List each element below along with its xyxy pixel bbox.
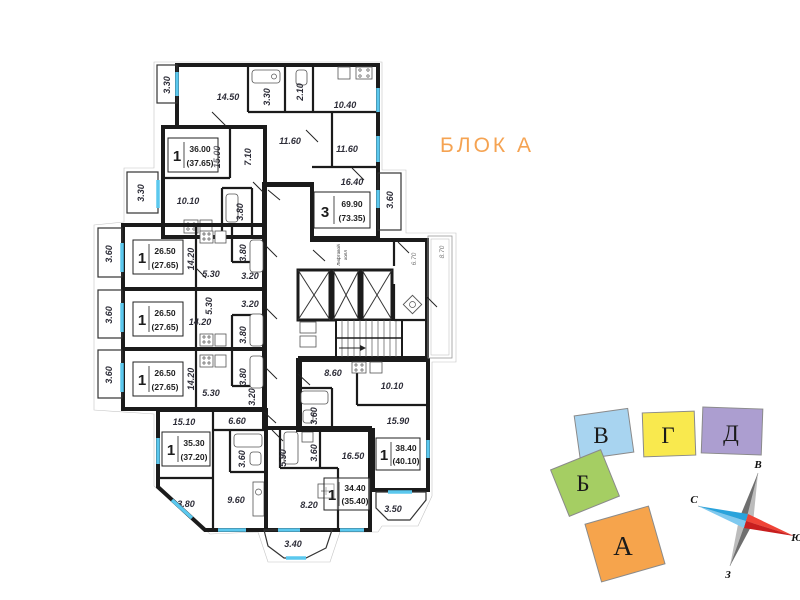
compass-blade-north-dark — [698, 506, 748, 521]
floor-plan-canvas: 14.50 3.30 2.10 10.40 11.60 11.60 16.40 … — [0, 0, 800, 600]
yellow-top-kitchen-dim: 10.10 — [177, 196, 200, 206]
elevator-shaft-icons — [298, 270, 392, 320]
yellow-bottom-apartment-tag: 1 35.30 (37.20) — [162, 432, 210, 466]
escape-balcony-outline: 8.70 — [428, 236, 452, 358]
stove-icon — [200, 334, 213, 346]
compass-label-west: З — [724, 569, 731, 581]
stove-icon — [200, 231, 213, 243]
purple-balcony-dim: 3.40 — [284, 539, 302, 549]
apartment-yellow-bottom: 15.10 6.60 3.60 9.60 3.80 1 35.30 (37.20… — [158, 410, 266, 530]
sink-icon — [338, 67, 350, 79]
green-mid-living-area: 26.50 — [154, 308, 176, 318]
yellow-bottom-kitchen-dim: 9.60 — [227, 495, 245, 505]
yellow-top-balcony-dim: 3.30 — [136, 184, 146, 202]
elevator-core: Лифтовой холл — [298, 240, 427, 357]
pink-bed-dim: 11.60 — [336, 144, 358, 154]
yellow-top-hall-dim: 7.10 — [243, 148, 253, 166]
blue-living-area: 26.50 — [154, 246, 176, 256]
sink-icon — [215, 231, 226, 243]
pink-balcony-top-dim: 3.30 — [162, 76, 172, 94]
pink-hall-dim: 11.60 — [279, 136, 301, 146]
purple-kitchen-dim: 8.20 — [300, 500, 318, 510]
yellow-bottom-room-count: 1 — [167, 442, 175, 459]
sink-icon — [370, 362, 382, 373]
green-mid-room-count: 1 — [138, 312, 146, 329]
utility-closet — [300, 336, 316, 347]
apartment-yellow-top: 15.00 7.10 10.10 3.80 3.30 1 36.00 (37.6… — [127, 127, 265, 237]
orange-room-count: 1 — [138, 372, 146, 389]
green-bottom-living-area: 38.40 — [395, 443, 417, 453]
bathtub-icon — [250, 356, 263, 388]
escape-balcony-dim: 8.70 — [439, 245, 446, 258]
bathtub-icon — [252, 70, 280, 83]
site-minimap: В Г Д Б А — [551, 407, 763, 582]
yellow-top-total-area: (37.65) — [187, 158, 214, 168]
compass-label-north: С — [690, 494, 698, 506]
green-mid-balcony-dim: 3.60 — [104, 306, 114, 324]
block-title: БЛОК А — [440, 134, 534, 157]
pink-total-area: (73.35) — [339, 213, 366, 223]
garbage-chute-icon — [403, 295, 421, 313]
yellow-top-bath-dim: 3.80 — [235, 203, 245, 221]
pink-balcony-right-dim: 3.60 — [385, 191, 395, 209]
orange-balcony-dim: 3.60 — [104, 366, 114, 384]
green-bottom-kitchen-dim: 8.60 — [324, 368, 342, 378]
corridor-dim: 6.70 — [411, 252, 418, 265]
orange-living-area: 26.50 — [154, 368, 176, 378]
stove-icon — [352, 362, 366, 373]
green-mid-apartment-tag: 1 26.50 (27.65) — [133, 302, 183, 336]
purple-room-count: 1 — [328, 487, 336, 504]
elevator-hall-label-1: Лифтовой — [335, 244, 341, 266]
bathtub-icon — [234, 434, 262, 447]
pink-living-dim: 16.40 — [341, 177, 364, 187]
pink-kitchen-dim: 10.40 — [334, 100, 357, 110]
yellow-bottom-total-area: (37.20) — [181, 452, 208, 462]
orange-total-area: (27.65) — [152, 382, 179, 392]
green-mid-kitchen-dim: 5.30 — [204, 297, 214, 315]
stove-icon — [200, 355, 213, 367]
pink-bath-dim: 3.30 — [262, 88, 272, 106]
blue-total-area: (27.65) — [152, 260, 179, 270]
purple-living-area: 34.40 — [344, 483, 366, 493]
orange-bath-dim: 3.80 — [238, 368, 248, 386]
bathtub-icon — [250, 240, 263, 272]
compass-rose: В С Ю З — [690, 459, 800, 581]
minimap-label-g: Г — [661, 423, 674, 448]
green-mid-total-area: (27.65) — [152, 322, 179, 332]
minimap-label-a: А — [613, 531, 633, 561]
green-bottom-total-area: (40.10) — [393, 456, 420, 466]
sink-icon — [215, 355, 226, 367]
minimap-label-d: Д — [723, 421, 739, 446]
yellow-top-living-area: 36.00 — [189, 144, 211, 154]
green-bottom-room-count: 1 — [380, 447, 388, 464]
floor-plan-page: 14.50 3.30 2.10 10.40 11.60 11.60 16.40 … — [0, 0, 800, 600]
yellow-top-apartment-tag: 1 36.00 (37.65) — [168, 138, 218, 172]
compass-blade-south-dark — [744, 521, 794, 536]
building-plan: 14.50 3.30 2.10 10.40 11.60 11.60 16.40 … — [94, 62, 456, 562]
green-mid-living-dim: 14.20 — [189, 317, 212, 327]
blue-room-count: 1 — [138, 250, 146, 267]
compass-label-south: Ю — [790, 532, 800, 544]
orange-apartment-tag: 1 26.50 (27.65) — [133, 362, 183, 396]
bathtub-icon — [250, 314, 263, 346]
purple-bath-dim: 3.60 — [309, 444, 319, 462]
yellow-bottom-bath-dim: 3.60 — [237, 450, 247, 468]
yellow-top-room-count: 1 — [173, 148, 181, 165]
blue-balcony-dim: 3.60 — [104, 245, 114, 263]
minimap-label-v: В — [593, 423, 608, 448]
blue-apartment-tag: 1 26.50 (27.65) — [133, 240, 183, 274]
green-bottom-bath-dim: 3.60 — [309, 407, 319, 425]
toilet-icon — [296, 70, 307, 85]
yellow-bottom-living-dim: 15.10 — [173, 417, 196, 427]
yellow-bottom-partitions — [158, 410, 266, 530]
green-mid-hall-dim: 3.20 — [241, 299, 259, 309]
minimap-label-b: Б — [576, 471, 589, 496]
toilet-icon — [250, 452, 261, 465]
pink-living-area: 69.90 — [341, 199, 363, 209]
kitchen-counter-icon — [253, 482, 264, 516]
blue-hall-dim: 3.20 — [241, 271, 259, 281]
utility-closet — [300, 322, 316, 333]
green-mid-bath-dim: 3.80 — [238, 326, 248, 344]
staircase-icon — [336, 320, 402, 357]
purple-hall-dim: 5.90 — [278, 449, 288, 467]
pink-room-dim: 14.50 — [217, 92, 240, 102]
elevator-hall-label-2: холл — [343, 250, 348, 260]
apartment-purple: 5.90 3.60 16.50 8.20 3.40 1 34.40 (35.40… — [264, 428, 370, 558]
compass-label-east: В — [753, 459, 761, 471]
bathtub-icon — [301, 391, 328, 404]
sink-icon — [215, 334, 226, 346]
purple-apartment-tag: 1 34.40 (35.40) — [324, 478, 370, 510]
yellow-bottom-living-area: 35.30 — [183, 438, 205, 448]
yellow-bottom-hall-dim: 6.60 — [228, 416, 246, 426]
blue-bath-dim: 3.80 — [238, 244, 248, 262]
green-bottom-apartment-tag: 1 38.40 (40.10) — [376, 438, 420, 470]
orange-living-dim: 14.20 — [186, 368, 196, 391]
green-bottom-hall-dim: 10.10 — [381, 381, 404, 391]
purple-total-area: (35.40) — [342, 496, 369, 506]
stove-icon — [356, 67, 372, 79]
green-bottom-living-dim: 15.90 — [387, 416, 410, 426]
orange-kitchen-dim: 5.30 — [202, 388, 220, 398]
blue-living-dim: 14.20 — [186, 248, 196, 271]
pink-room-count: 3 — [321, 204, 329, 221]
green-bottom-balcony-dim: 3.50 — [384, 504, 402, 514]
purple-living-dim: 16.50 — [342, 451, 365, 461]
pink-apartment-tag: 3 69.90 (73.35) — [314, 192, 370, 228]
sink-icon — [302, 432, 313, 442]
orange-hall-dim: 3.20 — [247, 388, 257, 406]
pink-wc-dim: 2.10 — [295, 83, 305, 102]
